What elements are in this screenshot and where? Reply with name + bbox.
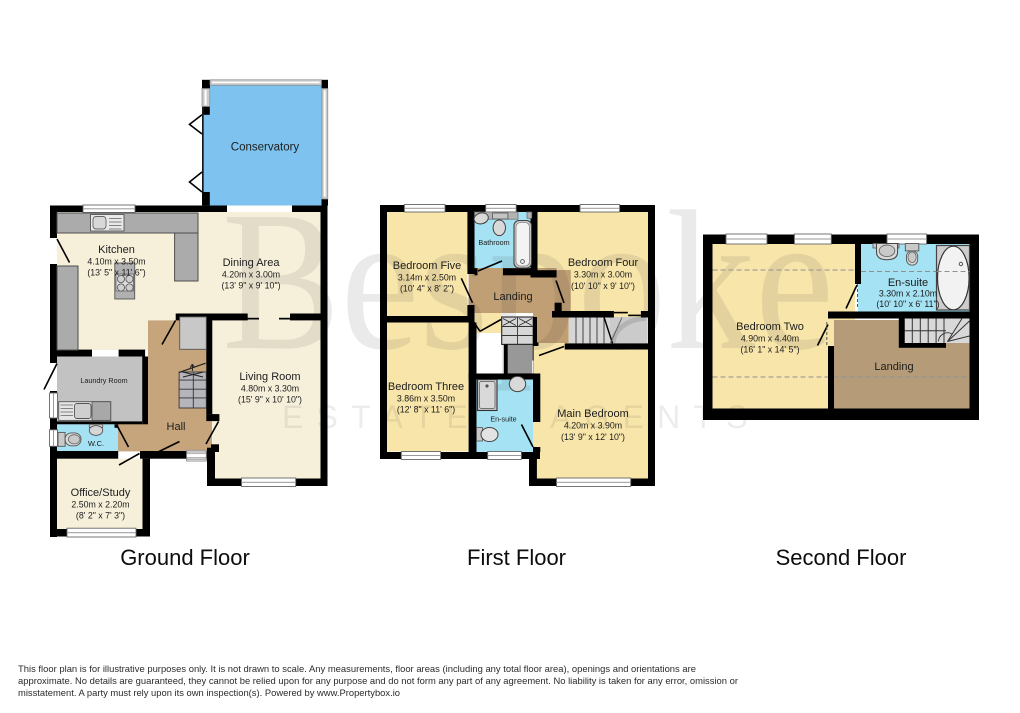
svg-text:Living Room: Living Room (239, 371, 300, 383)
svg-text:(13' 9" x 9' 10"): (13' 9" x 9' 10") (222, 281, 281, 291)
svg-text:3.14m x 2.50m: 3.14m x 2.50m (398, 273, 456, 283)
svg-text:approximate. No details are gu: approximate. No details are guaranteed, … (18, 676, 738, 687)
svg-text:Office/Study: Office/Study (71, 487, 131, 499)
svg-text:(13' 9" x 12' 10"): (13' 9" x 12' 10") (561, 432, 625, 442)
svg-text:(10' 10" x 6' 11"): (10' 10" x 6' 11") (876, 299, 939, 309)
svg-text:4.20m x 3.00m: 4.20m x 3.00m (222, 270, 280, 280)
svg-text:This floor plan is for illustr: This floor plan is for illustrative purp… (18, 664, 696, 675)
svg-text:(13' 5" x 11' 6"): (13' 5" x 11' 6") (87, 268, 145, 278)
svg-text:Bedroom Five: Bedroom Five (393, 260, 461, 272)
svg-text:Laundry Room: Laundry Room (80, 376, 127, 385)
svg-text:Main Bedroom: Main Bedroom (557, 408, 629, 420)
svg-text:En-suite: En-suite (490, 415, 516, 424)
svg-text:W.C.: W.C. (88, 439, 104, 448)
svg-text:misstatement. A party must rel: misstatement. A party must rely upon its… (18, 688, 400, 699)
svg-text:Kitchen: Kitchen (98, 244, 135, 256)
svg-text:4.20m x 3.90m: 4.20m x 3.90m (564, 421, 622, 431)
svg-text:4.90m x 4.40m: 4.90m x 4.40m (741, 334, 799, 344)
svg-text:Ground Floor: Ground Floor (120, 545, 250, 570)
svg-text:Dining Area: Dining Area (223, 257, 281, 269)
svg-text:2.50m x 2.20m: 2.50m x 2.20m (71, 500, 129, 510)
svg-text:Second Floor: Second Floor (776, 545, 907, 570)
svg-text:Landing: Landing (493, 291, 532, 303)
svg-text:3.30m x 2.10m: 3.30m x 2.10m (879, 289, 937, 299)
svg-text:(16' 1" x 14' 5"): (16' 1" x 14' 5") (741, 345, 800, 355)
svg-text:3.86m x 3.50m: 3.86m x 3.50m (397, 394, 455, 404)
svg-text:(8' 2" x 7' 3"): (8' 2" x 7' 3") (76, 511, 125, 521)
svg-text:(10' 10" x 9' 10"): (10' 10" x 9' 10") (571, 281, 635, 291)
svg-text:Bedroom Four: Bedroom Four (568, 257, 639, 269)
svg-text:En-suite: En-suite (888, 277, 928, 289)
svg-text:Conservatory: Conservatory (231, 142, 300, 154)
svg-text:(15' 9" x 10' 10"): (15' 9" x 10' 10") (238, 395, 302, 405)
svg-text:4.10m x 3.50m: 4.10m x 3.50m (87, 257, 145, 267)
svg-text:Bedroom Two: Bedroom Two (736, 321, 804, 333)
svg-text:(12' 8" x 11' 6"): (12' 8" x 11' 6") (397, 405, 455, 415)
svg-text:First Floor: First Floor (467, 545, 566, 570)
svg-text:Bedroom Three: Bedroom Three (388, 381, 464, 393)
svg-text:Hall: Hall (167, 421, 186, 433)
svg-text:(10' 4" x 8' 2"): (10' 4" x 8' 2") (400, 284, 454, 294)
svg-text:Bathroom: Bathroom (478, 238, 509, 247)
svg-text:4.80m x 3.30m: 4.80m x 3.30m (241, 384, 299, 394)
svg-text:Landing: Landing (874, 361, 913, 373)
svg-text:3.30m x 3.00m: 3.30m x 3.00m (574, 270, 632, 280)
